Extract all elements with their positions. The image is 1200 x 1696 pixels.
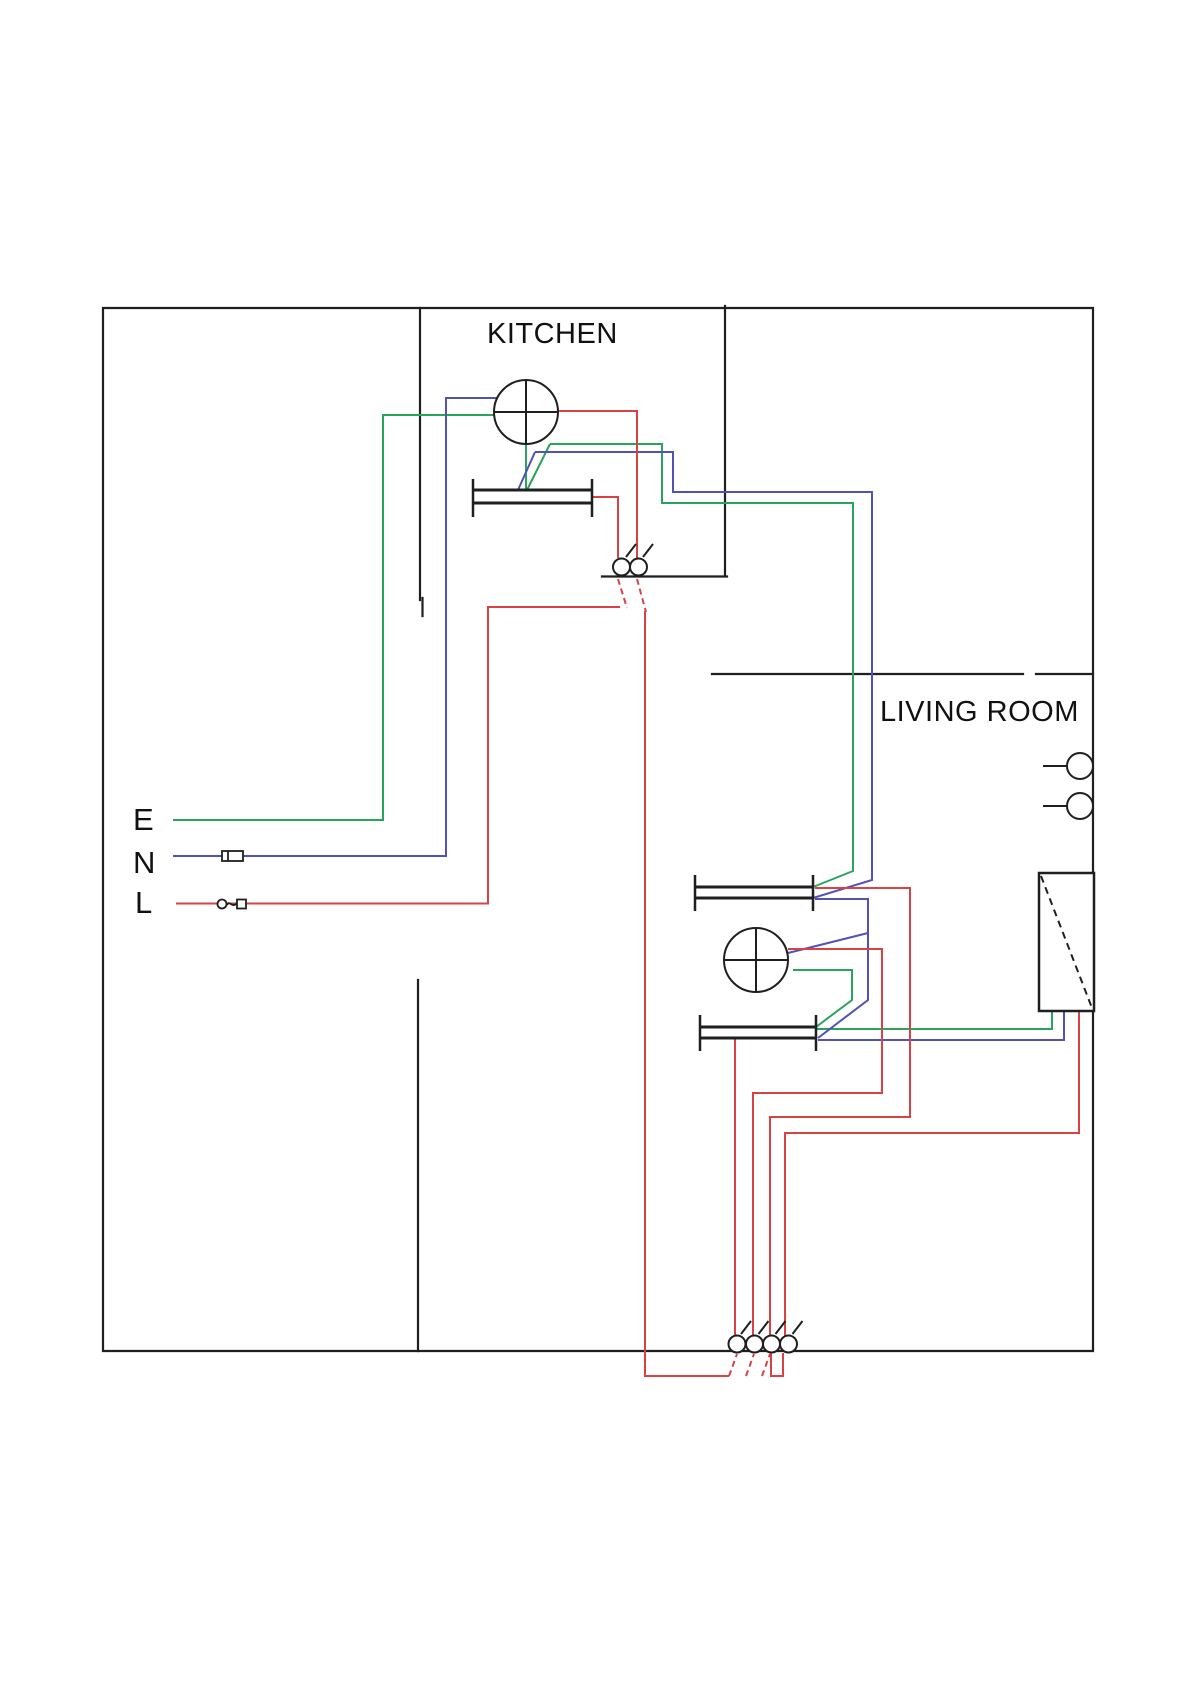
- four-gang-switch-icon: [729, 1321, 803, 1353]
- live-switch-drop-to-bottom: [645, 611, 729, 1376]
- switch-drop: [618, 579, 627, 608]
- live-rose1-to-switch: [558, 411, 637, 558]
- live-socket1-to-switch: [592, 497, 618, 558]
- live-consumer-unit-riser: [785, 1011, 1079, 1336]
- neutral-supply-run: [173, 398, 497, 856]
- live-gang-link: [771, 1353, 783, 1376]
- earth-kitchen-to-livingroom: [550, 444, 853, 887]
- neutral-socket2-to-socket3: [815, 899, 868, 1038]
- neutral-fuse-link-icon: [222, 851, 243, 861]
- live-supply-label: L: [135, 885, 152, 920]
- wall-light-lower-icon: [1043, 793, 1093, 819]
- text-labels: KITCHEN LIVING ROOM E N L: [133, 318, 1079, 920]
- neutral-socket3-to-consumer-unit: [818, 1011, 1064, 1040]
- neutral-supply-label: N: [133, 845, 155, 880]
- wiring-diagram-canvas: KITCHEN LIVING ROOM E N L: [0, 0, 1200, 1696]
- kitchen-left-wall-upper: [420, 308, 423, 616]
- outer-wall-border: [103, 308, 1093, 1351]
- switch-drop: [762, 1354, 770, 1376]
- kitchen-socket-outlet-icon: [473, 479, 592, 517]
- live-socket2-riser: [770, 888, 910, 1336]
- living-room-socket-upper-icon: [695, 875, 813, 911]
- wall-light-upper-icon: [1043, 753, 1093, 779]
- live-fuse-link-icon: [218, 900, 247, 909]
- kitchen-label: KITCHEN: [487, 318, 618, 350]
- living-room-ceiling-rose-icon: [724, 928, 788, 992]
- switch-drop: [729, 1354, 737, 1376]
- earth-supply-label: E: [133, 802, 154, 837]
- switch-drop: [637, 579, 646, 612]
- kitchen-ceiling-rose-icon: [494, 380, 558, 444]
- switch-drop: [746, 1354, 754, 1376]
- live-rose2-riser: [753, 949, 882, 1336]
- living-room-label: LIVING ROOM: [880, 696, 1079, 728]
- earth-socket-tap: [527, 444, 550, 490]
- living-room-socket-lower-icon: [700, 1015, 816, 1051]
- symbols: [218, 380, 1095, 1353]
- walls: [103, 306, 1093, 1351]
- consumer-unit-icon: [1039, 873, 1094, 1011]
- floor-plan-diagram: KITCHEN LIVING ROOM E N L: [0, 0, 1200, 1696]
